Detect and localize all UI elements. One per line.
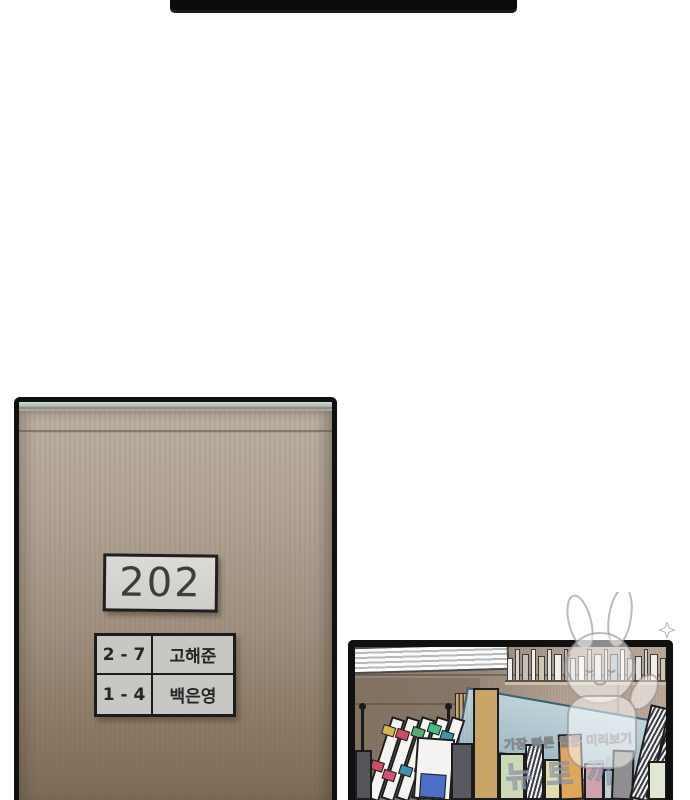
book-spine bbox=[558, 734, 584, 800]
book-spine bbox=[525, 744, 544, 800]
room-number-sign: 202 bbox=[103, 553, 219, 612]
book-spine bbox=[665, 756, 673, 800]
previous-panel-edge bbox=[170, 0, 517, 13]
comic-page: 202 2 - 7 고해준 1 - 4 백은영 bbox=[0, 0, 690, 800]
book-spine bbox=[355, 750, 372, 800]
bottom-books bbox=[355, 647, 666, 800]
book-spine bbox=[473, 688, 499, 800]
room-number: 202 bbox=[119, 560, 202, 607]
door-surface: 202 2 - 7 고해준 1 - 4 백은영 bbox=[19, 411, 332, 800]
book-spine bbox=[451, 743, 473, 800]
door-top-trim bbox=[19, 402, 332, 409]
nameplate-name-2: 백은영 bbox=[153, 675, 233, 714]
door-name-plate: 2 - 7 고해준 1 - 4 백은영 bbox=[94, 633, 236, 717]
nameplate-class-2: 1 - 4 bbox=[97, 675, 153, 714]
book-spine bbox=[584, 763, 604, 800]
sparkle-icon bbox=[659, 622, 675, 638]
desk-panel: 가장 빠른 웹툰 미리보기 뉴토끼 bbox=[348, 640, 673, 800]
door-panel: 202 2 - 7 고해준 1 - 4 백은영 bbox=[14, 397, 337, 800]
white-binder bbox=[413, 737, 455, 800]
desk-scene: 가장 빠른 웹툰 미리보기 뉴토끼 bbox=[355, 647, 666, 800]
nameplate-name-1: 고해준 bbox=[153, 636, 233, 675]
binder-label bbox=[419, 773, 447, 799]
book-spine bbox=[499, 753, 525, 800]
nameplate-class-1: 2 - 7 bbox=[97, 636, 153, 675]
door-groove bbox=[19, 430, 332, 433]
